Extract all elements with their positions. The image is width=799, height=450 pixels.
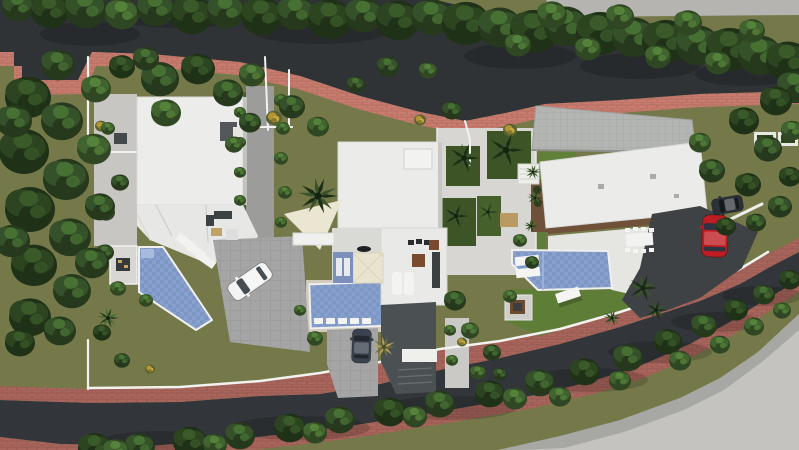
foliage: [475, 366, 481, 371]
foliage: [440, 401, 449, 409]
foliage: [588, 47, 596, 54]
foliage: [34, 261, 48, 273]
foliage: [658, 55, 666, 62]
foliage: [712, 53, 722, 61]
foliage: [334, 409, 345, 419]
foliage: [452, 359, 456, 362]
tree: [5, 329, 35, 356]
foliage: [198, 66, 208, 75]
foliage: [18, 4, 28, 12]
palm-crown: [534, 197, 537, 200]
foliage: [191, 56, 204, 67]
foliage: [706, 161, 716, 169]
foliage: [620, 379, 627, 385]
foliage: [98, 326, 105, 332]
foliage: [318, 125, 325, 131]
foliage: [58, 62, 68, 71]
tree: [606, 4, 634, 29]
foliage: [60, 328, 70, 336]
tree: [44, 317, 76, 346]
foliage: [240, 199, 244, 202]
foliage: [620, 14, 628, 21]
foliage: [53, 105, 69, 118]
foliage: [122, 11, 132, 20]
foliage: [718, 61, 726, 68]
bbq-item: [124, 265, 128, 268]
tree: [105, 0, 139, 29]
tree: [505, 33, 531, 56]
tree: [525, 256, 539, 269]
flowering-shrub: [414, 115, 426, 126]
tree: [403, 406, 427, 428]
sun-lounger: [392, 272, 402, 295]
chair: [408, 240, 414, 245]
foliage: [448, 103, 456, 109]
foliage: [748, 183, 756, 190]
foliage: [785, 271, 793, 278]
foliage: [94, 196, 105, 206]
palm-crown: [532, 171, 535, 174]
foliage: [122, 65, 130, 72]
foliage: [518, 43, 526, 50]
foliage: [101, 246, 108, 252]
foliage: [246, 65, 256, 73]
tree: [669, 351, 691, 371]
tree: [549, 387, 571, 407]
tree: [716, 218, 736, 236]
foliage: [280, 123, 285, 127]
tree: [43, 159, 89, 200]
foliage: [447, 326, 452, 330]
palm-crown: [106, 316, 110, 320]
foliage: [552, 12, 561, 20]
tree: [275, 217, 287, 228]
bbq-grill: [116, 258, 130, 271]
tree: [470, 365, 486, 379]
foliage: [776, 98, 786, 106]
foliage: [466, 324, 473, 330]
palm-crown: [503, 147, 509, 153]
foliage: [96, 86, 105, 94]
foliage: [700, 141, 707, 147]
foliage: [50, 8, 61, 18]
foliage: [517, 235, 522, 239]
foliage: [237, 108, 242, 112]
sofa-dark: [214, 211, 232, 219]
palm-crown: [640, 285, 645, 290]
foliage: [283, 127, 287, 131]
tree: [575, 37, 601, 60]
car-windshield: [354, 336, 370, 342]
dining-chair: [641, 249, 646, 253]
foliage: [310, 424, 319, 432]
foliage: [281, 221, 285, 224]
tree: [151, 99, 181, 126]
foliage: [615, 372, 623, 379]
tree: [724, 299, 748, 321]
foliage: [340, 417, 349, 425]
foliage: [271, 118, 277, 123]
foliage: [488, 346, 495, 352]
foliage: [51, 52, 64, 63]
tree: [213, 79, 243, 106]
car-roof: [354, 342, 369, 353]
palm-crown: [461, 155, 467, 161]
foliage: [520, 239, 524, 243]
foliage: [790, 175, 797, 181]
foliage: [390, 409, 400, 417]
foliage: [143, 295, 148, 299]
foliage: [534, 372, 545, 382]
tree: [278, 186, 292, 199]
tree: [294, 305, 306, 316]
foliage: [759, 286, 767, 293]
pool-lounger: [338, 318, 347, 324]
bbq-item: [118, 260, 122, 263]
flowering-shrub: [457, 338, 467, 347]
foliage: [778, 304, 785, 310]
tree: [691, 314, 717, 337]
foliage: [102, 331, 107, 336]
foliage: [779, 45, 796, 59]
dining-table: [626, 232, 654, 247]
foliage: [782, 309, 787, 314]
foliage: [88, 435, 101, 446]
foliage: [30, 205, 45, 218]
foliage: [120, 181, 125, 186]
tree: [239, 63, 265, 86]
tree: [109, 55, 135, 78]
tree: [674, 10, 702, 35]
tree: [374, 398, 406, 427]
foliage: [768, 146, 776, 153]
foliage: [398, 17, 411, 28]
foliage: [283, 416, 295, 426]
outdoor-sofa: [293, 233, 334, 245]
court-table: [114, 133, 127, 144]
foliage: [756, 221, 762, 226]
foliage: [62, 118, 75, 129]
foliage: [240, 433, 249, 441]
foliage: [192, 12, 205, 23]
foliage: [450, 292, 458, 299]
foliage: [738, 110, 749, 120]
chair: [416, 239, 422, 244]
tree: [81, 75, 111, 102]
foliage: [423, 2, 438, 15]
dining-chair: [649, 248, 654, 252]
tree: [225, 422, 255, 449]
flowering-shrub: [503, 124, 517, 137]
foliage: [428, 69, 433, 74]
tree: [475, 380, 505, 407]
foliage: [56, 162, 73, 177]
foliage: [183, 429, 196, 440]
foliage: [560, 395, 567, 401]
foliage: [166, 110, 175, 118]
foliage: [470, 329, 475, 334]
car-dark: [349, 329, 374, 364]
foliage: [278, 218, 283, 222]
foliage: [546, 4, 557, 14]
foliage: [491, 11, 508, 25]
foliage: [754, 325, 760, 330]
tree: [139, 294, 153, 307]
foliage: [785, 168, 793, 175]
foliage: [675, 352, 683, 359]
tree: [570, 358, 600, 385]
foliage: [722, 219, 730, 225]
foliage: [388, 65, 395, 71]
cabana-door: [344, 258, 350, 276]
foliage: [698, 316, 708, 324]
foliage: [6, 107, 20, 119]
tree: [705, 51, 731, 74]
flowering-shrub: [145, 365, 155, 374]
foliage: [252, 73, 260, 80]
foliage: [297, 306, 302, 310]
tree: [308, 0, 352, 39]
foliage: [296, 10, 307, 20]
foliage: [389, 4, 406, 18]
foliage: [115, 282, 121, 287]
tree: [279, 95, 305, 118]
pool-steps: [141, 249, 154, 258]
palm-crown: [530, 225, 533, 228]
foliage: [510, 295, 514, 299]
car-rear-glass: [703, 247, 725, 252]
dining-chair: [641, 227, 646, 231]
foliage: [312, 332, 318, 337]
tree: [513, 234, 527, 247]
fire-bowl: [357, 246, 371, 252]
foliage: [300, 309, 304, 312]
foliage: [210, 436, 219, 444]
foliage: [356, 83, 361, 88]
table-brown: [429, 240, 439, 250]
tree: [444, 291, 466, 311]
tree: [537, 1, 567, 28]
tree: [274, 414, 306, 443]
foliage: [731, 301, 740, 309]
foliage: [134, 436, 145, 446]
foliage: [490, 391, 499, 399]
tree: [419, 62, 437, 78]
foliage: [282, 187, 287, 191]
foliage: [762, 138, 773, 147]
tree: [654, 329, 682, 354]
foliage: [160, 102, 171, 112]
tree: [114, 353, 130, 367]
foliage: [383, 400, 395, 410]
car-rear-glass: [354, 355, 369, 359]
foliage: [85, 250, 98, 261]
tree: [744, 318, 764, 336]
foliage: [410, 408, 419, 416]
foliage: [215, 443, 222, 449]
foliage: [228, 90, 237, 98]
foliage: [160, 76, 171, 86]
foliage: [532, 261, 536, 265]
foliage: [146, 299, 150, 303]
tree: [303, 422, 327, 444]
rooftop-unit: [404, 149, 432, 169]
foliage: [515, 397, 522, 403]
tree: [645, 45, 671, 68]
foliage: [237, 196, 242, 200]
dining-chair: [625, 228, 630, 232]
tree: [101, 122, 115, 135]
foliage: [253, 0, 269, 13]
foliage: [21, 301, 37, 314]
foliage: [775, 198, 784, 206]
palm-crown: [382, 345, 386, 349]
foliage: [383, 58, 391, 65]
tree: [234, 167, 246, 178]
tree: [110, 281, 126, 295]
foliage: [622, 347, 633, 357]
foliage: [688, 20, 696, 27]
foliage: [484, 383, 495, 393]
foliage: [695, 134, 703, 141]
foliage: [752, 215, 760, 221]
tree: [461, 322, 479, 338]
rooftop-unit-lid: [233, 127, 242, 138]
foliage: [628, 355, 637, 363]
tree: [325, 406, 355, 433]
foliage: [720, 31, 738, 46]
foliage: [668, 339, 676, 346]
foliage: [415, 415, 422, 421]
tree: [689, 133, 711, 153]
foliage: [652, 47, 662, 55]
foliage: [28, 93, 42, 105]
foliage: [116, 176, 123, 182]
foliage: [321, 3, 338, 17]
pool-lounger: [350, 318, 359, 324]
tree: [93, 324, 111, 340]
foliage: [744, 118, 753, 126]
foliage: [712, 169, 720, 176]
tree: [735, 173, 761, 196]
tree: [77, 134, 111, 165]
foliage: [140, 49, 150, 57]
scene-root: [0, 0, 799, 450]
foliage: [492, 351, 497, 356]
tree: [773, 302, 791, 318]
foliage: [115, 1, 128, 12]
foliage: [680, 359, 687, 365]
tree: [753, 285, 775, 305]
pool-lounger: [362, 318, 371, 324]
foliage: [4, 227, 18, 239]
tree: [446, 355, 458, 366]
foliage: [86, 6, 99, 17]
foliage: [364, 12, 375, 22]
foliage: [418, 120, 422, 124]
planter-dark: [432, 252, 440, 288]
foliage: [510, 390, 519, 398]
tree: [425, 390, 455, 417]
foliage: [582, 39, 592, 47]
foliage: [20, 340, 29, 348]
tree: [111, 174, 129, 190]
foliage: [190, 439, 200, 448]
tree: [181, 54, 215, 85]
palm-crown: [314, 192, 321, 199]
dining-chair: [625, 248, 630, 252]
dining-chair: [649, 228, 654, 232]
pool-lounger: [326, 318, 335, 324]
foliage: [66, 175, 80, 187]
foliage: [278, 153, 283, 157]
foliage: [285, 191, 289, 195]
roof-vent: [598, 184, 604, 189]
foliage: [87, 136, 100, 147]
chair-pad: [226, 229, 238, 240]
table-top: [513, 303, 522, 311]
foliage: [313, 118, 321, 125]
foliage: [315, 431, 322, 437]
dining-chair: [633, 227, 638, 231]
foliage: [250, 121, 257, 127]
tree: [276, 122, 290, 135]
tree: [503, 388, 527, 410]
foliage: [656, 23, 674, 38]
foliage: [579, 361, 590, 371]
foliage: [456, 5, 474, 20]
tree: [274, 152, 288, 165]
foliage: [590, 15, 608, 30]
palm-crown: [454, 214, 459, 219]
foliage: [315, 337, 320, 341]
tree: [739, 19, 765, 42]
foliage: [792, 129, 799, 135]
car-roof: [724, 198, 736, 211]
foliage: [72, 288, 83, 298]
sun-lounger: [404, 272, 414, 295]
foliage: [764, 293, 771, 299]
tree: [493, 368, 507, 381]
tree: [609, 371, 631, 391]
foliage: [234, 143, 239, 148]
foliage: [424, 64, 431, 70]
foliage: [108, 127, 112, 131]
foliage: [230, 138, 237, 144]
tree: [377, 57, 399, 77]
table-brown: [412, 254, 425, 267]
roof-vent: [650, 174, 656, 179]
foliage: [529, 257, 534, 261]
foliage: [18, 80, 35, 95]
foliage: [746, 21, 756, 29]
tree: [85, 193, 115, 220]
foliage: [507, 291, 512, 295]
foliage: [14, 332, 25, 342]
foliage: [122, 359, 127, 363]
foliage: [752, 29, 760, 36]
foliage: [61, 221, 77, 234]
foliage: [222, 82, 233, 92]
foliage: [240, 171, 244, 174]
courtyard-a: [94, 94, 137, 246]
foliage: [585, 369, 594, 377]
foliage: [245, 114, 253, 121]
foliage: [555, 388, 563, 395]
foliage: [750, 319, 758, 325]
foliage: [356, 1, 370, 13]
foliage: [156, 6, 167, 16]
